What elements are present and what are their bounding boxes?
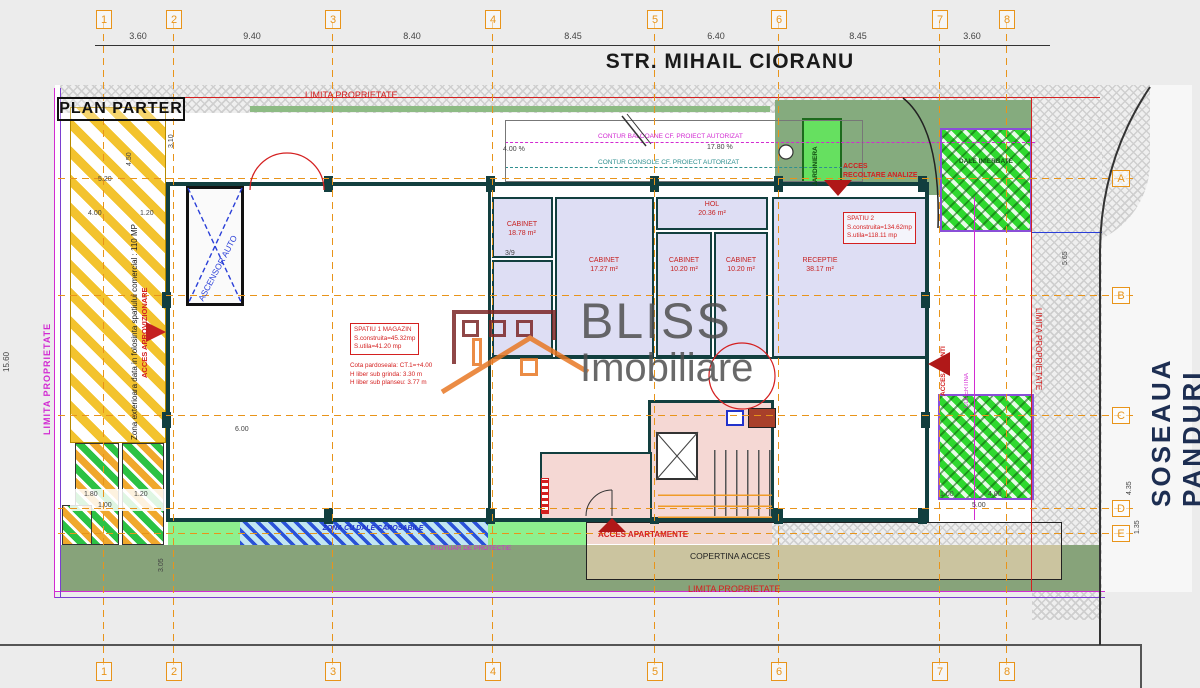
grid-marker-top-6: 6 xyxy=(771,10,787,29)
room-label-hol: HOL 20.36 m² xyxy=(677,200,747,218)
grid-line-h xyxy=(58,178,1134,179)
limita-left-label: LIMITA PROPRIETATE xyxy=(42,240,52,435)
top-dim-line xyxy=(95,45,1050,46)
green-strip-top xyxy=(250,106,770,112)
grid-marker-bot-5: 5 xyxy=(647,662,663,681)
spatiu1-l3: S.utila=41.20 mp xyxy=(354,343,415,352)
acces-recoltare-l1: ACCES xyxy=(843,162,918,171)
limita-line-bottom-magenta xyxy=(55,591,1105,592)
dim-1560: 15.60 xyxy=(2,336,11,372)
acces-recoltare-label: ACCES RECOLTARE ANALIZE xyxy=(843,162,918,180)
room-label-cabinet-1: CABINET 18.78 m² xyxy=(487,220,557,238)
spatiu1-notes: Cota pardoseala: CT.1=+4.00 H liber sub … xyxy=(350,362,432,388)
dim-450: 4.50 xyxy=(126,138,133,166)
limita-right-label: LIMITA PROPRIETATE xyxy=(1034,308,1043,428)
elevator-shaft xyxy=(656,432,698,480)
spatiu2-l3: S.utila=118.11 mp xyxy=(847,232,912,241)
dim-305: 3.05 xyxy=(158,548,165,572)
contur-balcoane-label: CONTUR BALCOANE CF. PROIECT AUTORIZAT xyxy=(598,133,743,140)
dim-120b: 1.20 xyxy=(134,491,148,498)
room-label-cabinet-3: CABINET 10.20 m² xyxy=(657,256,711,274)
acces-clienti-label: ACCES CLIENTI xyxy=(940,312,947,396)
grid-line-v xyxy=(778,20,779,665)
grid-line-v xyxy=(332,20,333,665)
grid-marker-top-1: 1 xyxy=(96,10,112,29)
dim-120: 1.20 xyxy=(140,210,154,217)
dim-310: 3.10 xyxy=(168,120,175,148)
grid-marker-bot-7: 7 xyxy=(932,662,948,681)
grid-marker-bot-6: 6 xyxy=(771,662,787,681)
utility-box-icon xyxy=(748,408,776,428)
dim-top-5: 6.40 xyxy=(691,31,741,41)
room-area: 18.78 m² xyxy=(487,229,557,238)
grid-marker-bot-1: 1 xyxy=(96,662,112,681)
room-area: 10.20 m² xyxy=(657,265,711,274)
stair-run-label: 3/9 xyxy=(505,250,515,257)
column xyxy=(486,508,495,524)
dim-565: 5.65 xyxy=(1062,233,1069,265)
zona-exterioara-label: Zona exterioara data in folosinta spatiu… xyxy=(130,122,139,440)
line-left-purple xyxy=(60,88,61,598)
street-name-right: SOSEAUA PANDURI xyxy=(1146,222,1200,507)
grid-marker-top-3: 3 xyxy=(325,10,341,29)
spatiu2-l2: S.construita=134.62mp xyxy=(847,224,912,233)
column xyxy=(918,508,927,524)
spatiu1-l2: S.construita=45.32mp xyxy=(354,335,415,344)
room-name: HOL xyxy=(677,200,747,209)
dim-400: 4.00 xyxy=(88,210,102,217)
exterior-yellow-zone xyxy=(70,107,166,443)
electric-panel-icon xyxy=(726,410,744,426)
limita-line-left-magenta xyxy=(54,88,55,598)
street-edge-bottom xyxy=(0,644,1140,646)
dim-top-2: 9.40 xyxy=(227,31,277,41)
entrance-hall xyxy=(540,452,652,520)
spatiu1-l1: SPATIU 1 MAGAZIN xyxy=(354,326,415,335)
room-cabinet-2 xyxy=(555,197,654,357)
grid-line-v xyxy=(1006,20,1007,665)
trotuar-label: TROTUAR DE PROTECTIE xyxy=(430,545,511,552)
dim-500: 5.00 xyxy=(972,502,986,509)
copertina-acces-label: COPERTINA ACCES xyxy=(690,551,770,561)
room-label-receptie: RECEPTIE 38.17 m² xyxy=(785,256,855,274)
grid-marker-bot-8: 8 xyxy=(999,662,1015,681)
dim-top-7: 3.60 xyxy=(947,31,997,41)
copertina-tan xyxy=(587,545,1061,579)
dim-100: 1.00 xyxy=(98,502,112,509)
grid-marker-row-d: D xyxy=(1112,500,1130,517)
room-area: 10.20 m² xyxy=(714,265,768,274)
dim-top-6: 8.45 xyxy=(833,31,883,41)
grid-marker-bot-3: 3 xyxy=(325,662,341,681)
line-bottom-purple xyxy=(55,597,1105,598)
grid-line-v xyxy=(492,20,493,665)
dim-top-3: 8.40 xyxy=(387,31,437,41)
acces-aprovizionare-label: ACCES APROVIZIONARE xyxy=(140,260,149,378)
dim-600: 6.00 xyxy=(235,426,249,433)
acces-apartamente-label: ACCES APARTAMENTE xyxy=(598,530,688,539)
limita-line-top xyxy=(60,97,1100,98)
grid-line-h xyxy=(58,533,1134,534)
spatiu2-annotation: SPATIU 2 S.construita=134.62mp S.utila=1… xyxy=(843,212,916,244)
street-edge-bottom-v xyxy=(1140,644,1142,688)
room-name: CABINET xyxy=(657,256,711,265)
dim-435: 4.35 xyxy=(1126,463,1133,495)
dim-180: 1.80 xyxy=(84,491,98,498)
contur-console-label: CONTUR CONSOLE CF. PROIECT AUTORIZAT xyxy=(598,159,739,166)
grid-marker-bot-2: 2 xyxy=(166,662,182,681)
pct-400: 4.00 % xyxy=(503,146,525,153)
room-label-cabinet-4: CABINET 10.20 m² xyxy=(714,256,768,274)
spatiu2-l1: SPATIU 2 xyxy=(847,215,912,224)
dale-inierbate-label: DALE INIERBATE xyxy=(940,158,1032,165)
room-name: CABINET xyxy=(487,220,557,229)
grid-marker-top-5: 5 xyxy=(647,10,663,29)
dim-520: 5.20 xyxy=(98,176,112,183)
plan-title: PLAN PARTER xyxy=(57,97,185,121)
grass-pavers-right xyxy=(938,394,1034,500)
copertina-side-label: COPERTINA xyxy=(964,338,970,408)
grid-marker-row-a: A xyxy=(1112,170,1130,187)
planter-corner xyxy=(62,505,92,545)
spatiu1-l6: H liber sub planseu: 3.77 m xyxy=(350,379,432,388)
dim-100b: 1.00 xyxy=(940,491,954,498)
grid-line-h xyxy=(58,415,1134,416)
acces-recoltare-l2: RECOLTARE ANALIZE xyxy=(843,171,918,180)
spatiu1-annotation: SPATIU 1 MAGAZIN S.construita=45.32mp S.… xyxy=(350,323,419,355)
room-name: CABINET xyxy=(714,256,768,265)
spatiu1-l5: H liber sub grinda: 3.30 m xyxy=(350,371,432,380)
room-cabinet-1b xyxy=(492,260,553,357)
dim-top-4: 8.45 xyxy=(548,31,598,41)
grid-marker-row-e: E xyxy=(1112,525,1130,542)
zona-dale-label: ZONA CU DALE CAROSABILE xyxy=(268,525,478,532)
room-label-cabinet-2: CABINET 17.27 m² xyxy=(569,256,639,274)
street-name-top: STR. MIHAIL CIORANU xyxy=(595,50,865,74)
limita-line-right-red xyxy=(1031,97,1032,591)
spatiu1-l4: Cota pardoseala: CT.1=+4.00 xyxy=(350,362,432,371)
dim-top-1: 3.60 xyxy=(113,31,163,41)
dim-400b: 4.00 xyxy=(988,491,1002,498)
car-lift-box xyxy=(186,186,244,306)
stair-guides xyxy=(658,486,772,518)
line-copertina-magenta xyxy=(974,197,975,520)
limita-top-label: LIMITA PROPRIETATE xyxy=(305,90,398,100)
grid-marker-bot-4: 4 xyxy=(485,662,501,681)
limita-bottom-label: LIMITA PROPRIETATE xyxy=(688,584,781,594)
room-area: 20.36 m² xyxy=(677,209,747,218)
grid-line-h xyxy=(58,295,1134,296)
jardiniera-label: JARDINIERA xyxy=(812,124,819,186)
grid-marker-row-b: B xyxy=(1112,287,1130,304)
grid-marker-top-8: 8 xyxy=(999,10,1015,29)
grid-line-v xyxy=(654,20,655,665)
grid-marker-top-4: 4 xyxy=(485,10,501,29)
console-outline xyxy=(505,120,863,182)
grass-pavers-top xyxy=(940,128,1032,232)
dim-135: 1.35 xyxy=(1134,508,1141,534)
room-name: CABINET xyxy=(569,256,639,265)
grid-marker-top-7: 7 xyxy=(932,10,948,29)
room-area: 17.27 m² xyxy=(569,265,639,274)
grid-marker-row-c: C xyxy=(1112,407,1130,424)
grid-marker-top-2: 2 xyxy=(166,10,182,29)
pct-1780: 17.80 % xyxy=(707,144,733,151)
floor-plan-canvas: STR. MIHAIL CIORANU 1 2 3 4 5 6 7 8 1 2 … xyxy=(0,0,1200,688)
room-name: RECEPTIE xyxy=(785,256,855,265)
room-area: 38.17 m² xyxy=(785,265,855,274)
